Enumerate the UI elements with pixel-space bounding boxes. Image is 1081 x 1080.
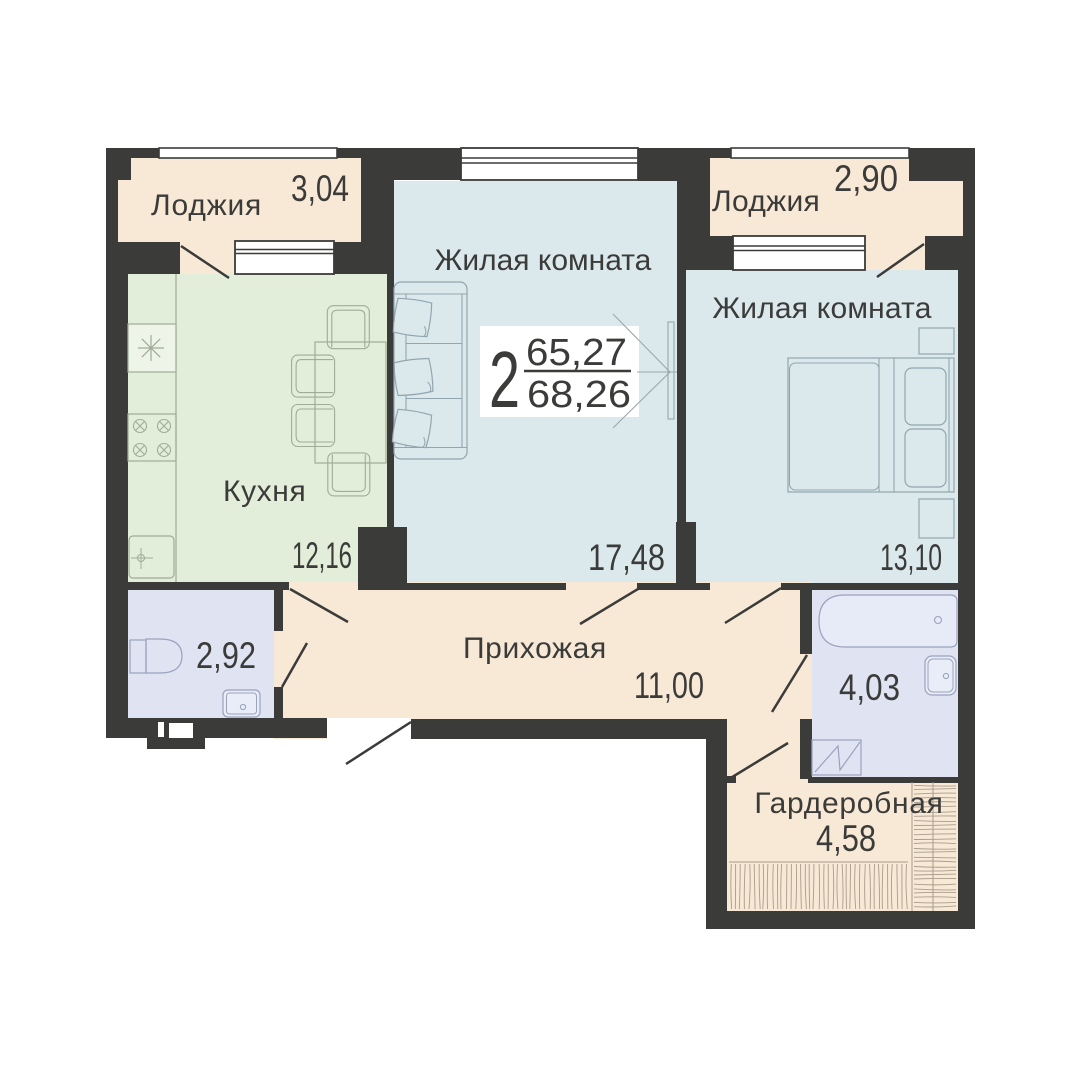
svg-text:3,04: 3,04 [291, 168, 349, 209]
svg-text:Лоджия: Лоджия [151, 189, 262, 222]
svg-text:Прихожая: Прихожая [463, 632, 607, 665]
svg-text:Жилая комната: Жилая комната [712, 292, 931, 325]
svg-text:4,58: 4,58 [816, 818, 876, 859]
svg-text:2: 2 [489, 335, 520, 424]
svg-text:Кухня: Кухня [223, 475, 306, 508]
svg-text:12,16: 12,16 [292, 535, 352, 576]
svg-text:11,00: 11,00 [634, 665, 704, 706]
svg-text:17,48: 17,48 [588, 537, 665, 578]
svg-text:Лоджия: Лоджия [712, 185, 820, 218]
svg-text:68,26: 68,26 [527, 374, 631, 416]
svg-text:Гардеробная: Гардеробная [754, 787, 943, 820]
svg-text:2,92: 2,92 [196, 635, 256, 676]
svg-text:2,90: 2,90 [834, 158, 898, 199]
svg-text:65,27: 65,27 [526, 332, 627, 374]
svg-text:Жилая комната: Жилая комната [435, 244, 652, 277]
svg-text:13,10: 13,10 [880, 537, 942, 578]
svg-text:4,03: 4,03 [839, 667, 900, 708]
